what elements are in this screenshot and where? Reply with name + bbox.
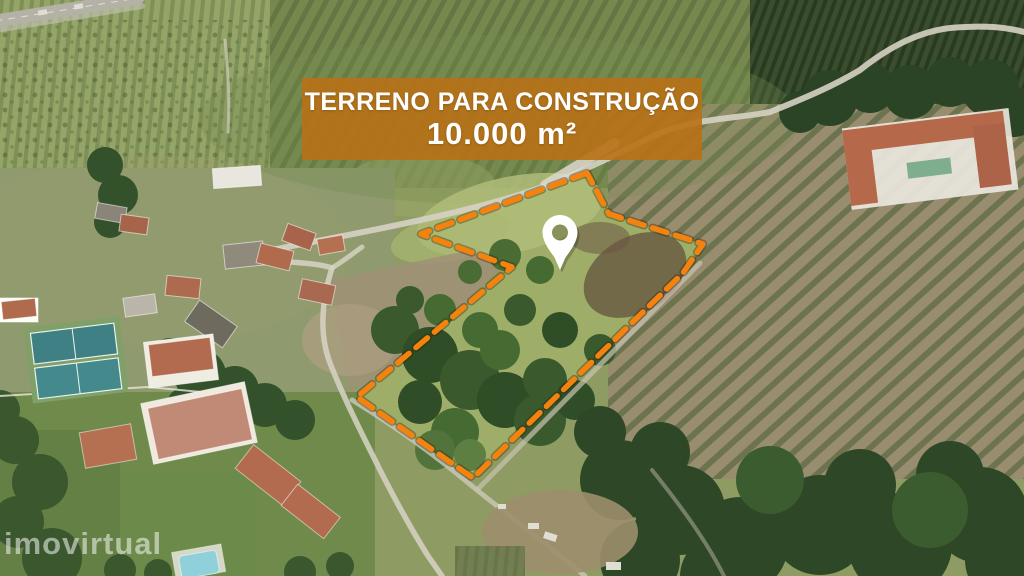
tennis-court: [24, 316, 129, 403]
banner-area: 10.000 m²: [427, 118, 577, 149]
listing-banner: TERRENO PARA CONSTRUÇÃO 10.000 m²: [302, 78, 702, 160]
imovirtual-watermark: imovirtual: [4, 528, 162, 559]
aerial-property-photo: TERRENO PARA CONSTRUÇÃO 10.000 m² imovir…: [0, 0, 1024, 576]
white-building: [212, 165, 261, 188]
banner-title: TERRENO PARA CONSTRUÇÃO: [305, 90, 700, 115]
